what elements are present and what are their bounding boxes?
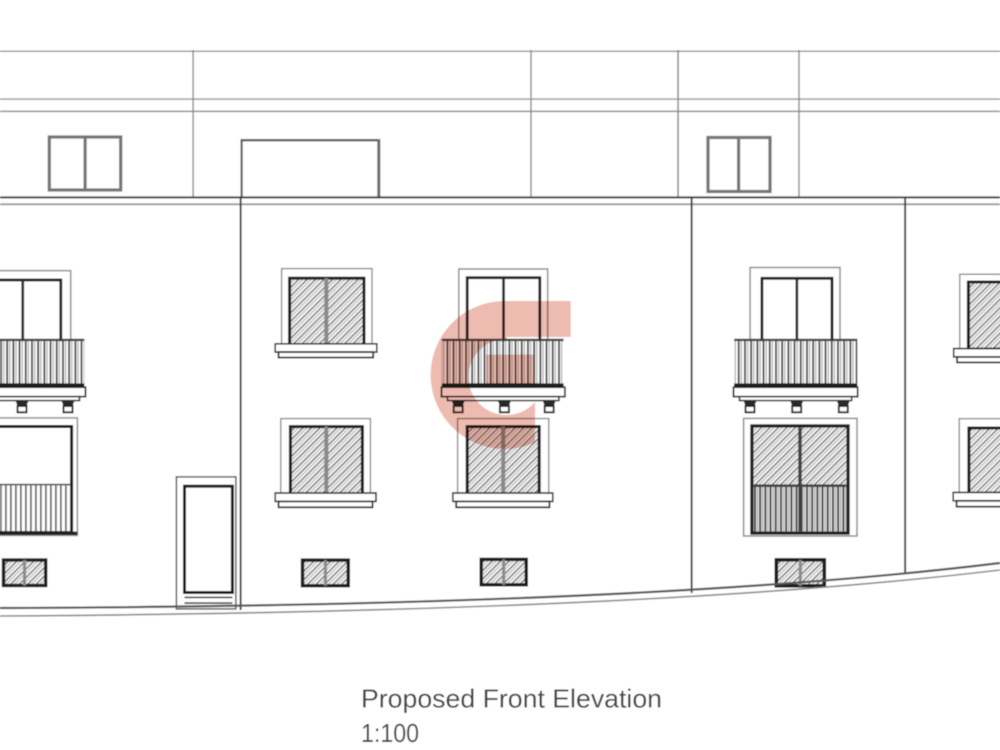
svg-text:1:100: 1:100 [361, 718, 419, 748]
svg-text:Proposed Front Elevation: Proposed Front Elevation [361, 684, 662, 714]
